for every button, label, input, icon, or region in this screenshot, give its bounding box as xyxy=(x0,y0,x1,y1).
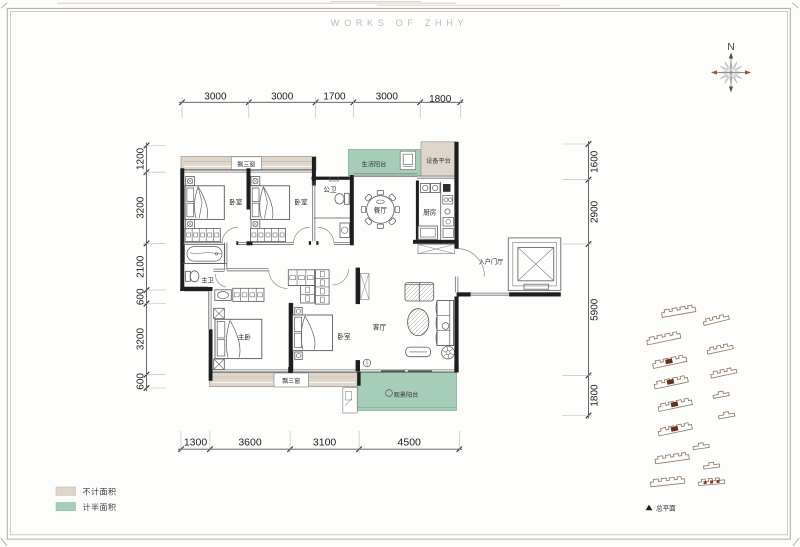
svg-text:3100: 3100 xyxy=(313,437,337,449)
svg-text:600: 600 xyxy=(136,288,147,305)
svg-text:生活阳台: 生活阳台 xyxy=(362,161,387,169)
svg-text:1200: 1200 xyxy=(136,147,147,170)
svg-text:总平面: 总平面 xyxy=(656,503,676,512)
svg-text:计半面积: 计半面积 xyxy=(83,502,117,512)
svg-text:飘三窗: 飘三窗 xyxy=(282,377,300,385)
svg-text:餐厅: 餐厅 xyxy=(374,205,388,214)
svg-text:3000: 3000 xyxy=(271,91,294,102)
svg-text:飘三窗: 飘三窗 xyxy=(237,161,255,169)
svg-text:观景阳台: 观景阳台 xyxy=(394,391,419,399)
svg-text:3200: 3200 xyxy=(136,196,147,219)
svg-text:客厅: 客厅 xyxy=(373,322,387,331)
svg-text:公卫: 公卫 xyxy=(323,186,337,194)
svg-text:N: N xyxy=(727,41,735,53)
svg-text:1800: 1800 xyxy=(590,384,601,407)
svg-text:1700: 1700 xyxy=(323,91,346,102)
svg-text:入户门厅: 入户门厅 xyxy=(479,258,504,266)
svg-text:主卫: 主卫 xyxy=(201,275,214,284)
svg-text:设备平台: 设备平台 xyxy=(426,157,451,165)
svg-text:3200: 3200 xyxy=(136,328,147,351)
svg-text:卧室: 卧室 xyxy=(229,198,243,207)
svg-text:1600: 1600 xyxy=(590,150,601,173)
svg-text:600: 600 xyxy=(136,373,147,390)
svg-text:2100: 2100 xyxy=(136,255,147,278)
svg-text:不计面积: 不计面积 xyxy=(83,486,117,496)
svg-text:3600: 3600 xyxy=(238,437,262,449)
svg-text:卧室: 卧室 xyxy=(294,198,308,207)
svg-text:5900: 5900 xyxy=(590,298,601,321)
svg-text:1800: 1800 xyxy=(429,94,452,105)
svg-text:主卧: 主卧 xyxy=(238,332,252,341)
svg-text:2900: 2900 xyxy=(590,200,601,223)
svg-text:3000: 3000 xyxy=(376,91,399,102)
svg-text:厨房: 厨房 xyxy=(423,207,437,216)
svg-text:3000: 3000 xyxy=(204,91,227,102)
svg-text:WORKS OF ZHHY: WORKS OF ZHHY xyxy=(331,18,468,28)
svg-text:1300: 1300 xyxy=(184,437,208,449)
svg-text:卧室: 卧室 xyxy=(337,332,351,341)
svg-text:4500: 4500 xyxy=(398,437,422,449)
